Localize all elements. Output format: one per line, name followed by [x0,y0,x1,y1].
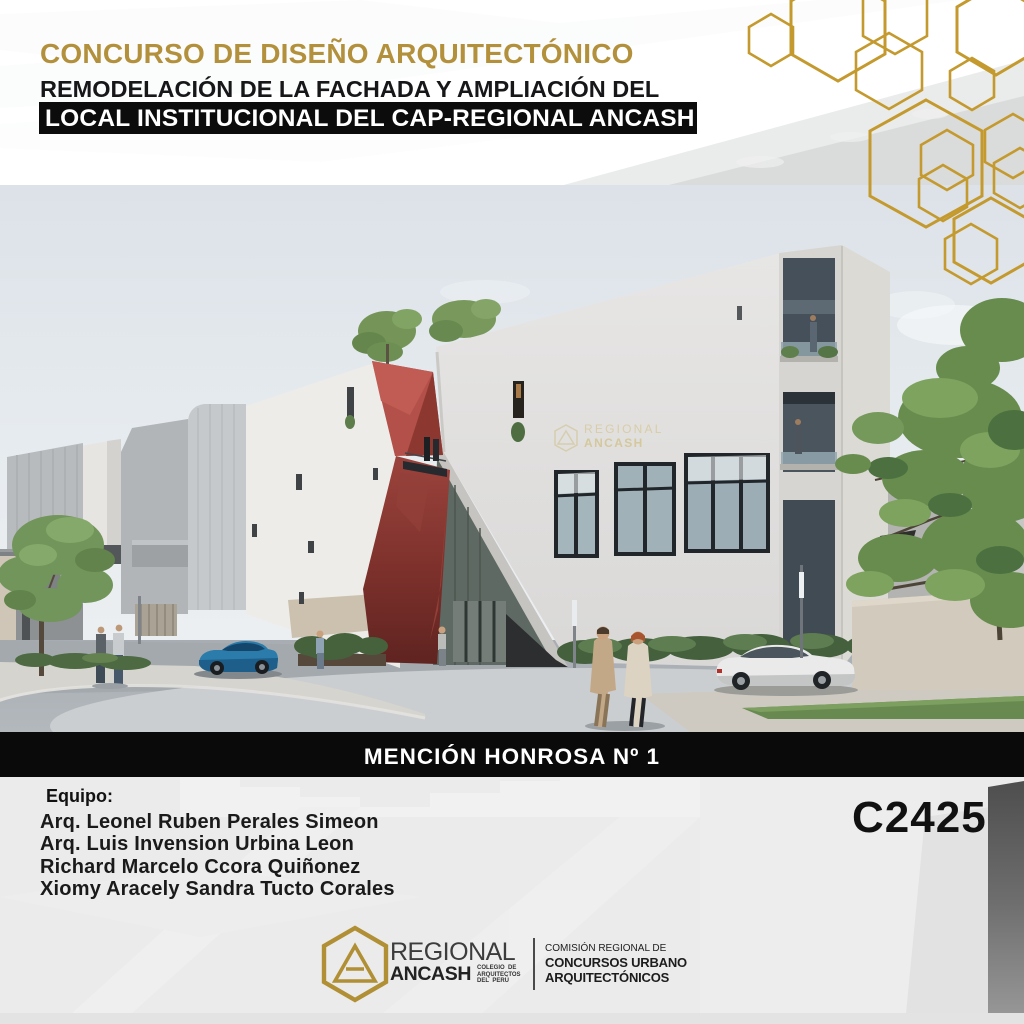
svg-text:REGIONAL: REGIONAL [584,422,664,436]
svg-text:ANCASH: ANCASH [584,436,644,450]
